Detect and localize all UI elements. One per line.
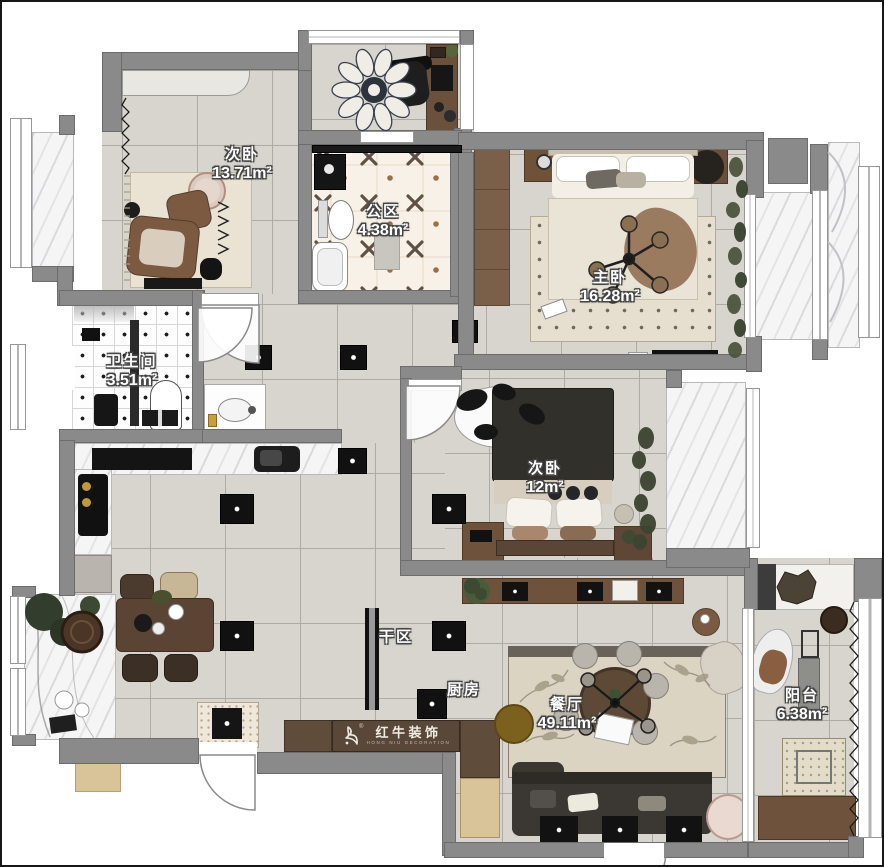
wall (810, 144, 828, 194)
room-name: 主卧 (593, 266, 627, 287)
pillow (555, 496, 603, 529)
bottom-cabinet (284, 720, 332, 752)
desk-item (434, 102, 444, 112)
wall (59, 429, 205, 443)
radio (470, 530, 492, 542)
room-label-dry-area: 干区 (379, 626, 413, 647)
speaker-black (646, 582, 672, 601)
floor-spotlight (432, 494, 466, 524)
window (858, 598, 882, 838)
bolster (566, 486, 580, 500)
window (308, 30, 460, 44)
room-area: 3.51m² (107, 372, 158, 390)
brand-subtitle: HONG NIU DECORATION (367, 741, 451, 746)
window (10, 668, 26, 736)
bed3-headboard (496, 540, 614, 556)
room-area: 16.28m² (580, 288, 640, 306)
room-name: 阳台 (785, 684, 819, 705)
photo-frame (430, 47, 446, 58)
speaker-black (577, 582, 603, 601)
nightstand-plant (622, 530, 636, 544)
entry-recess (199, 742, 257, 764)
sink-basin (260, 450, 282, 466)
table-plant (609, 689, 621, 701)
wall (59, 115, 75, 135)
tv-bench (144, 278, 202, 289)
room-area: 4.38m² (358, 222, 409, 240)
door-panel (408, 379, 462, 391)
table-greens (152, 590, 172, 604)
room-area: 49.11m² (538, 715, 597, 733)
wall (102, 52, 304, 70)
window (746, 388, 760, 548)
sofa-pillow (567, 792, 599, 812)
brand-name: 红牛装饰 (375, 726, 441, 739)
pillow-small (616, 172, 646, 188)
cooktop-black (92, 448, 192, 470)
chaise-cushion (138, 228, 186, 268)
bolster (584, 486, 598, 500)
toilet-bowl (328, 200, 354, 240)
room-label-master: 主卧 16.28m² (580, 266, 640, 306)
sliding-glass-door (742, 608, 754, 842)
dining-chair-round (616, 641, 642, 667)
balcony-cabinet (758, 796, 856, 840)
room-label-bathroom: 卫生间 3.51m² (106, 350, 157, 390)
office-chair (389, 60, 431, 109)
dry-area-divider (365, 608, 379, 710)
window (10, 344, 26, 430)
room-label-kitchen: 厨房 (447, 679, 481, 700)
door-opening (604, 843, 664, 858)
desk-item (444, 110, 456, 122)
wall (102, 52, 122, 132)
wall (458, 152, 474, 370)
dining-table (116, 598, 214, 652)
coffee-table-black (666, 816, 702, 844)
pillow (505, 496, 553, 529)
wall (202, 429, 342, 443)
wall (192, 290, 204, 442)
room-label-gongqu: 公区 4.38m² (358, 200, 409, 240)
wall (666, 548, 750, 568)
wall (59, 440, 75, 596)
floor-spotlight (338, 448, 367, 474)
nook-side-table (368, 84, 386, 102)
floor-spotlight (220, 494, 254, 524)
window (812, 190, 828, 340)
room-label-balcony: 阳台 6.38m² (777, 684, 828, 724)
dining-chair-round (572, 643, 598, 669)
dining-chair-round (643, 673, 669, 699)
stove-knob (82, 482, 91, 491)
sofa-pillow (638, 796, 666, 811)
sofa-pillow (530, 790, 556, 808)
room-label-dining: 餐厅 49.11m² (538, 693, 597, 733)
faucet (248, 406, 256, 414)
stove-knob (82, 498, 91, 507)
wardrobe (474, 148, 510, 306)
room-area: 12m² (526, 479, 563, 497)
wall (257, 752, 445, 774)
wall (442, 752, 456, 856)
wall (454, 354, 752, 370)
bay-window-bedroom2 (32, 132, 74, 268)
registered-mark: ® (359, 724, 363, 730)
vanity-sink (218, 398, 252, 422)
vent-black (82, 328, 100, 341)
washer-drum (796, 750, 832, 784)
dining-chair (122, 654, 158, 682)
wardrobe-cabinet (122, 70, 250, 96)
window (744, 194, 756, 338)
console-plant (464, 578, 490, 604)
coffee-table-black (540, 816, 578, 844)
plant-pot (124, 202, 140, 218)
pillow-brown (560, 526, 596, 540)
room-name: 干区 (379, 626, 413, 647)
bay-window-kitchen (24, 594, 116, 740)
table-lamp (536, 154, 552, 170)
floor-spotlight (245, 345, 272, 370)
window-opening (59, 346, 75, 390)
drying-rack-frame (801, 630, 819, 658)
brand-banner: ® 红牛装饰 HONG NIU DECORATION (332, 720, 460, 752)
wall (812, 338, 828, 360)
desk-plant (446, 45, 458, 57)
stool-round (614, 504, 634, 524)
door-panel (201, 293, 259, 306)
floor-spotlight (220, 621, 254, 651)
floor-plan: 次卧 13.71m² 公区 4.38m² 主卧 16.28m² 卫生间 3.51… (0, 0, 884, 867)
cup (700, 614, 710, 624)
room-name: 餐厅 (550, 693, 584, 714)
wall (854, 558, 882, 602)
plate (168, 604, 184, 620)
floor-spotlight (417, 689, 447, 719)
shower-glass (74, 304, 134, 322)
wall (400, 378, 412, 576)
room-area: 6.38m² (777, 706, 828, 724)
monitor (431, 65, 453, 91)
dining-chair-round (632, 719, 658, 745)
teapot (134, 614, 152, 632)
pillow-brown (512, 526, 548, 540)
floor-spotlight (432, 621, 466, 651)
bathtub-inner (317, 248, 343, 286)
room-name: 厨房 (447, 679, 481, 700)
wall (746, 336, 762, 372)
cup-yellow (208, 414, 217, 427)
wall (748, 842, 864, 858)
window (858, 166, 880, 338)
pouf-mustard (494, 704, 534, 744)
floor-spotlight (340, 345, 367, 370)
bath-cabinet (142, 410, 178, 426)
room-label-bedroom2: 次卧 13.71m² (212, 143, 272, 183)
dining-chair (164, 654, 198, 682)
wall (848, 836, 864, 858)
toilet-tank (318, 200, 328, 238)
bath-stool (94, 394, 118, 426)
cabinet-column-wood (460, 778, 500, 838)
window (10, 596, 26, 664)
room-label-bedroom3: 次卧 12m² (526, 457, 563, 497)
coffee-table-black (602, 816, 638, 844)
dining-chair (120, 574, 154, 600)
wall (768, 138, 808, 184)
wall (59, 290, 205, 306)
doormat-center (212, 708, 242, 739)
wall (59, 738, 199, 764)
speaker-black (502, 582, 528, 601)
window (10, 118, 32, 268)
wall (298, 70, 312, 296)
console-white-box (612, 580, 638, 601)
nook-white-wall (460, 44, 474, 130)
floor-bag (200, 258, 222, 280)
room-name: 公区 (366, 200, 400, 221)
wall (746, 140, 764, 198)
wall (458, 132, 764, 150)
base-cabinet (74, 555, 112, 593)
wall (666, 370, 682, 388)
balcony-master (754, 192, 814, 340)
sofa-back (512, 772, 712, 784)
wall (444, 842, 748, 858)
room-name: 次卧 (528, 457, 562, 478)
room-name: 次卧 (225, 143, 259, 164)
plate (152, 622, 165, 635)
room-area: 13.71m² (212, 165, 272, 183)
vanity-sink-dot (324, 164, 334, 174)
wall (298, 290, 462, 304)
bay-window-bedroom3 (666, 382, 746, 550)
accent-wall-black (312, 145, 462, 153)
sliding-door-panel (360, 131, 414, 143)
plant-pot-dark (820, 606, 848, 634)
deco-marble-strip (828, 142, 860, 348)
room-name: 卫生间 (106, 350, 157, 371)
